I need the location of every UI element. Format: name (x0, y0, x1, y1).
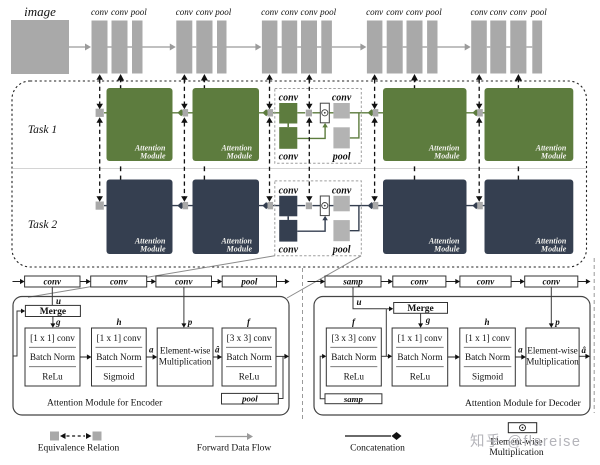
svg-text:Merge: Merge (407, 304, 433, 314)
svg-text:conv: conv (110, 277, 129, 287)
svg-text:Sigmoid: Sigmoid (472, 372, 504, 382)
svg-text:conv: conv (175, 277, 194, 287)
svg-text:g: g (425, 315, 431, 325)
svg-text:conv: conv (543, 277, 562, 287)
svg-text:conv: conv (196, 7, 213, 17)
svg-text:pool: pool (332, 244, 351, 255)
svg-text:conv: conv (411, 277, 430, 287)
svg-text:conv: conv (279, 244, 299, 255)
svg-text:Task 2: Task 2 (28, 219, 58, 231)
svg-text:conv: conv (490, 7, 507, 17)
svg-text:pool: pool (319, 7, 337, 17)
svg-text:[1 x 1] conv: [1 x 1] conv (30, 333, 75, 343)
svg-text:pool: pool (425, 7, 443, 17)
svg-text:conv: conv (111, 7, 128, 17)
svg-text:ReLu: ReLu (410, 372, 431, 382)
svg-text:conv: conv (44, 277, 63, 287)
svg-text:Attention Module for Encoder: Attention Module for Encoder (47, 397, 163, 408)
svg-text:conv: conv (91, 7, 108, 17)
svg-text:u: u (356, 297, 361, 307)
svg-text:pool: pool (214, 7, 232, 17)
svg-text:[1 x 1] conv: [1 x 1] conv (465, 333, 510, 343)
svg-text:h: h (484, 317, 489, 327)
svg-text:conv: conv (406, 7, 423, 17)
svg-text:pool: pool (530, 7, 548, 17)
svg-text:Batch Norm: Batch Norm (465, 352, 510, 362)
svg-text:pool: pool (240, 277, 258, 287)
svg-text:Module: Module (433, 245, 460, 254)
svg-text:Concatenation: Concatenation (350, 444, 405, 454)
svg-text:pool: pool (241, 394, 258, 404)
svg-text:Module: Module (433, 152, 460, 161)
svg-text:conv: conv (279, 93, 299, 104)
svg-text:p: p (187, 317, 193, 327)
svg-text:â: â (582, 345, 587, 355)
svg-text:[1 x 1] conv: [1 x 1] conv (398, 333, 443, 343)
svg-text:知乎 @flareise: 知乎 @flareise (470, 433, 581, 450)
svg-text:Multiplication: Multiplication (526, 357, 579, 367)
svg-text:g: g (55, 317, 61, 327)
svg-text:Module: Module (226, 245, 253, 254)
svg-text:conv: conv (176, 7, 193, 17)
svg-text:samp: samp (343, 394, 364, 404)
svg-text:ReLu: ReLu (42, 372, 63, 382)
svg-text:Module: Module (540, 245, 567, 254)
svg-text:h: h (116, 317, 121, 327)
svg-text:[3 x 3] conv: [3 x 3] conv (227, 333, 272, 343)
svg-text:Batch Norm: Batch Norm (397, 352, 442, 362)
svg-text:Batch Norm: Batch Norm (30, 352, 75, 362)
svg-text:conv: conv (301, 7, 318, 17)
svg-text:ReLu: ReLu (239, 372, 260, 382)
svg-text:conv: conv (261, 7, 278, 17)
svg-text:ReLu: ReLu (344, 372, 365, 382)
svg-text:conv: conv (477, 277, 496, 287)
svg-text:p: p (554, 317, 560, 327)
svg-text:Task 1: Task 1 (28, 124, 57, 136)
svg-text:Attention Module for Decoder: Attention Module for Decoder (465, 398, 582, 409)
svg-text:conv: conv (332, 93, 352, 104)
svg-text:conv: conv (279, 152, 299, 163)
svg-text:Module: Module (540, 152, 567, 161)
svg-text:a: a (149, 345, 154, 355)
svg-text:[3 x 3] conv: [3 x 3] conv (331, 333, 376, 343)
svg-text:â: â (215, 345, 220, 355)
svg-text:conv: conv (366, 7, 383, 17)
svg-text:Module: Module (139, 152, 166, 161)
svg-text:Equivalence Relation: Equivalence Relation (38, 444, 120, 454)
svg-text:Batch Norm: Batch Norm (96, 352, 141, 362)
svg-text:pool: pool (130, 7, 148, 17)
svg-text:conv: conv (279, 185, 299, 196)
svg-text:image: image (24, 4, 56, 19)
svg-text:conv: conv (471, 7, 488, 17)
svg-text:[1 x 1] conv: [1 x 1] conv (97, 333, 142, 343)
svg-text:Batch Norm: Batch Norm (331, 352, 376, 362)
svg-text:conv: conv (281, 7, 298, 17)
svg-text:Module: Module (226, 152, 253, 161)
svg-text:Element-wise: Element-wise (160, 346, 211, 356)
svg-text:Module: Module (139, 245, 166, 254)
svg-text:pool: pool (332, 152, 351, 163)
svg-text:Element-wise: Element-wise (527, 346, 578, 356)
svg-text:Sigmoid: Sigmoid (103, 372, 135, 382)
svg-text:Multiplication: Multiplication (159, 357, 212, 367)
svg-text:conv: conv (510, 7, 527, 17)
svg-text:samp: samp (342, 277, 363, 287)
svg-text:u: u (56, 296, 61, 306)
svg-text:Merge: Merge (40, 307, 66, 317)
svg-text:a: a (518, 345, 523, 355)
svg-text:Batch Norm: Batch Norm (226, 352, 271, 362)
svg-text:conv: conv (386, 7, 403, 17)
svg-text:conv: conv (332, 185, 352, 196)
svg-text:Forward Data Flow: Forward Data Flow (197, 444, 272, 454)
